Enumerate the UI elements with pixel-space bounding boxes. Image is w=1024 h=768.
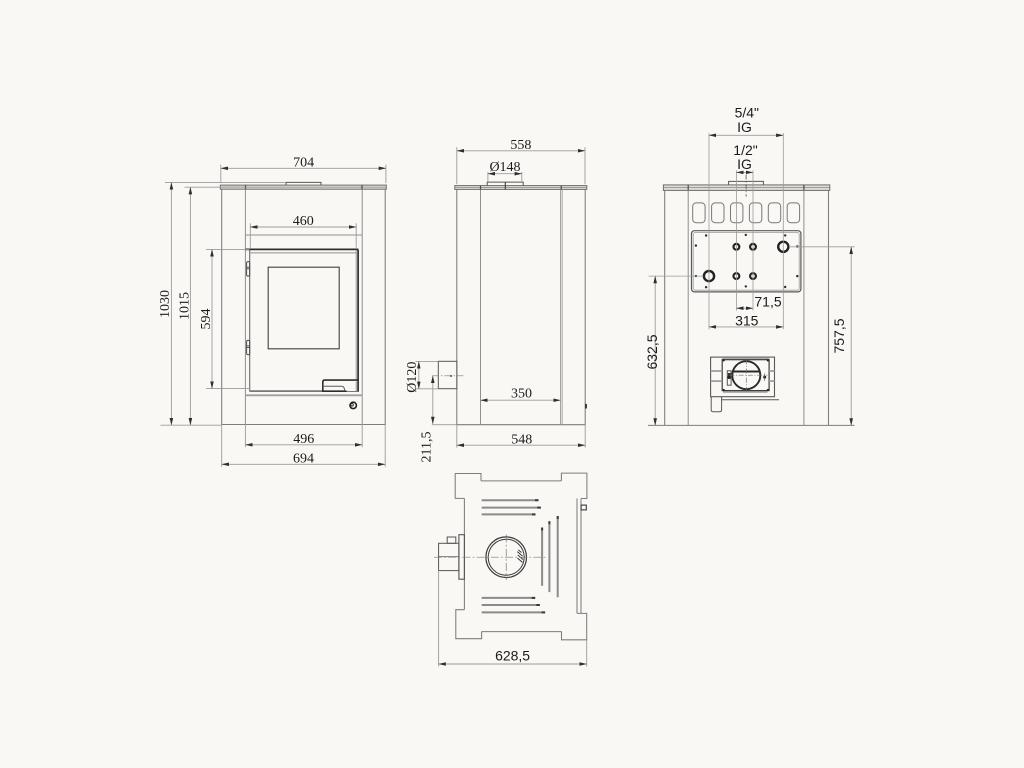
svg-text:IG: IG	[737, 119, 752, 135]
svg-text:548: 548	[511, 432, 532, 447]
svg-text:628,5: 628,5	[495, 648, 530, 664]
svg-text:757,5: 757,5	[831, 318, 847, 353]
svg-text:704: 704	[293, 156, 314, 171]
svg-text:350: 350	[511, 387, 532, 402]
svg-text:496: 496	[293, 432, 314, 447]
svg-text:211,5: 211,5	[420, 432, 435, 463]
svg-text:632,5: 632,5	[644, 334, 660, 369]
svg-text:460: 460	[293, 214, 314, 229]
svg-text:Ø148: Ø148	[489, 160, 520, 175]
svg-text:558: 558	[510, 138, 531, 153]
svg-text:IG: IG	[737, 156, 752, 172]
svg-text:1030: 1030	[158, 290, 173, 318]
svg-text:315: 315	[735, 313, 759, 329]
svg-text:Ø120: Ø120	[405, 362, 420, 393]
svg-text:594: 594	[199, 309, 214, 330]
svg-text:694: 694	[293, 451, 314, 466]
svg-text:71,5: 71,5	[754, 293, 781, 309]
svg-text:1015: 1015	[177, 292, 192, 320]
